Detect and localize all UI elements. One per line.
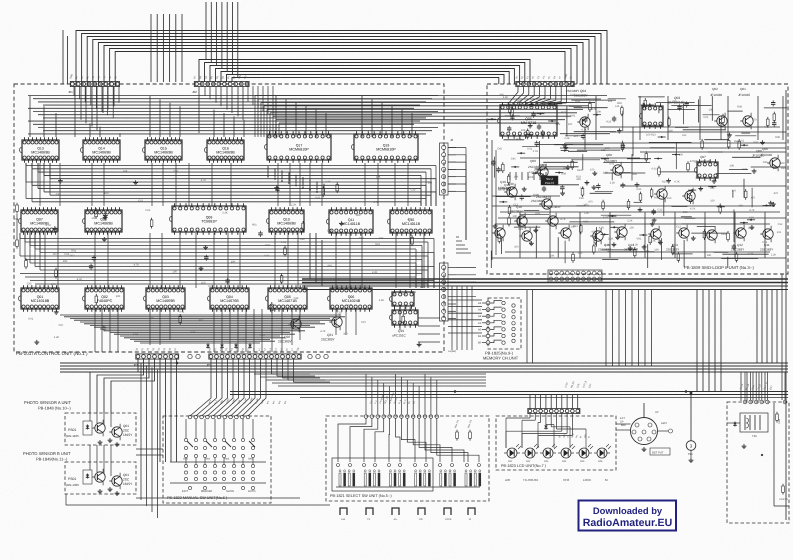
svg-text:10K: 10K <box>123 170 128 173</box>
svg-text:R01: R01 <box>252 224 257 227</box>
svg-text:C33: C33 <box>327 230 332 233</box>
svg-text:C33: C33 <box>359 237 364 240</box>
svg-text:0.01: 0.01 <box>145 209 151 212</box>
svg-text:4.7K: 4.7K <box>77 278 83 281</box>
svg-text:4.7K: 4.7K <box>373 201 379 204</box>
svg-text:C07: C07 <box>59 324 64 327</box>
svg-text:10K: 10K <box>116 295 121 298</box>
svg-text:R01: R01 <box>375 243 380 246</box>
svg-text:C07: C07 <box>338 311 343 314</box>
svg-text:10K: 10K <box>149 317 154 320</box>
svg-text:C33: C33 <box>260 334 265 337</box>
svg-text:0.01: 0.01 <box>179 311 185 314</box>
svg-text:C07: C07 <box>199 319 204 322</box>
svg-text:C33: C33 <box>56 193 61 196</box>
svg-text:0.01: 0.01 <box>281 241 287 244</box>
svg-text:2.2K: 2.2K <box>372 271 378 274</box>
svg-text:4.7K: 4.7K <box>411 255 417 258</box>
svg-text:4.7K: 4.7K <box>408 218 414 221</box>
svg-text:0.01: 0.01 <box>315 197 321 200</box>
svg-text:0.01: 0.01 <box>28 317 34 320</box>
svg-text:4.7K: 4.7K <box>201 179 207 182</box>
svg-text:10K: 10K <box>376 176 381 179</box>
svg-text:100: 100 <box>343 333 348 336</box>
svg-text:0.01: 0.01 <box>133 333 139 336</box>
svg-text:C33: C33 <box>401 293 406 296</box>
svg-text:100: 100 <box>379 237 384 240</box>
svg-text:10K: 10K <box>63 260 68 263</box>
svg-text:0.01: 0.01 <box>64 253 70 256</box>
svg-text:10K: 10K <box>51 283 56 286</box>
svg-text:100: 100 <box>91 217 96 220</box>
svg-text:100: 100 <box>428 182 433 185</box>
svg-text:C33: C33 <box>191 331 196 334</box>
svg-text:2.2K: 2.2K <box>325 180 331 183</box>
svg-text:C07: C07 <box>361 321 366 324</box>
svg-text:C07: C07 <box>174 170 179 173</box>
svg-text:C33: C33 <box>300 238 305 241</box>
svg-text:2.2K: 2.2K <box>379 299 385 302</box>
svg-text:C33: C33 <box>411 188 416 191</box>
svg-text:R01: R01 <box>328 264 333 267</box>
svg-text:0.01: 0.01 <box>265 255 271 258</box>
svg-text:R01: R01 <box>356 214 361 217</box>
svg-text:0.01: 0.01 <box>348 304 354 307</box>
svg-text:2.2K: 2.2K <box>54 336 60 339</box>
svg-text:2.2K: 2.2K <box>291 204 297 207</box>
svg-text:R01: R01 <box>71 250 76 253</box>
svg-text:4.7K: 4.7K <box>134 264 140 267</box>
svg-text:4.7K: 4.7K <box>320 330 326 333</box>
svg-text:C07: C07 <box>70 254 75 257</box>
svg-text:Downloaded by: Downloaded by <box>593 505 663 516</box>
svg-text:RadioAmateur.EU: RadioAmateur.EU <box>583 517 672 529</box>
svg-text:0.01: 0.01 <box>208 285 214 288</box>
svg-text:100: 100 <box>201 281 206 284</box>
svg-text:C33: C33 <box>27 283 32 286</box>
svg-text:C33: C33 <box>294 297 299 300</box>
svg-text:R01: R01 <box>391 294 396 297</box>
svg-text:C07: C07 <box>53 253 58 256</box>
svg-text:2.2K: 2.2K <box>222 212 228 215</box>
svg-text:4.7K: 4.7K <box>420 286 426 289</box>
svg-text:4.7K: 4.7K <box>46 224 52 227</box>
svg-text:100: 100 <box>104 192 109 195</box>
svg-text:4.7K: 4.7K <box>239 338 245 341</box>
svg-text:C07: C07 <box>265 244 270 247</box>
svg-text:0.01: 0.01 <box>411 291 417 294</box>
svg-text:10K: 10K <box>231 261 236 264</box>
svg-text:100: 100 <box>173 270 178 273</box>
svg-text:C07: C07 <box>138 200 143 203</box>
